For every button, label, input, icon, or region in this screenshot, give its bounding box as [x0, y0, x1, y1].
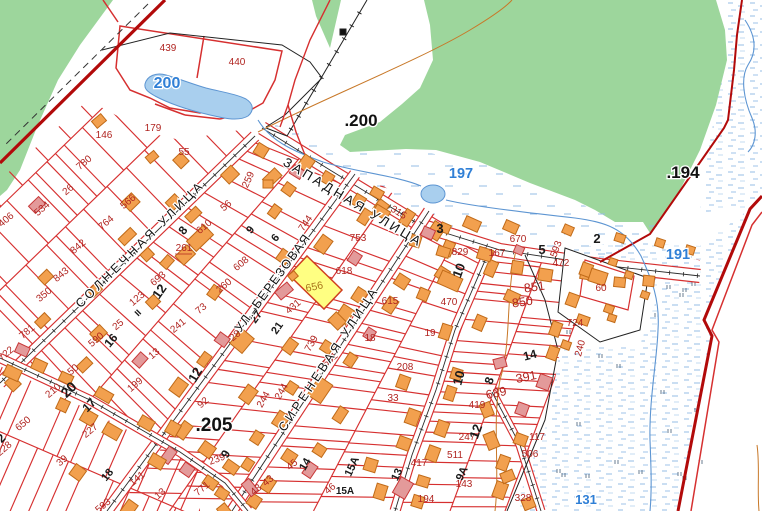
svg-text:208: 208: [397, 362, 414, 373]
svg-text:33: 33: [387, 393, 399, 404]
svg-text:472: 472: [553, 258, 570, 269]
svg-text:851: 851: [523, 279, 546, 296]
svg-text:261: 261: [176, 243, 193, 254]
svg-text:439: 439: [160, 43, 177, 54]
svg-text:167: 167: [489, 248, 506, 259]
svg-text:850: 850: [511, 294, 534, 311]
svg-text:419: 419: [469, 400, 486, 411]
svg-text:131: 131: [575, 492, 597, 507]
svg-text:194: 194: [418, 494, 435, 505]
svg-text:615: 615: [382, 296, 399, 307]
svg-text:117: 117: [529, 432, 545, 443]
svg-text:328: 328: [515, 493, 532, 504]
svg-text:670: 670: [510, 234, 527, 245]
svg-text:15А: 15А: [336, 486, 354, 497]
svg-text:724: 724: [567, 318, 584, 329]
svg-text:.205: .205: [196, 415, 233, 436]
svg-text:5: 5: [538, 242, 545, 257]
svg-text:.194: .194: [666, 163, 700, 182]
svg-text:753: 753: [350, 233, 367, 244]
svg-text:197: 197: [449, 166, 473, 182]
svg-text:179: 179: [145, 123, 162, 134]
svg-text:55: 55: [178, 147, 190, 158]
svg-text:417: 417: [411, 458, 428, 469]
svg-text:2: 2: [593, 231, 600, 246]
svg-text:18: 18: [364, 333, 376, 344]
svg-text:200: 200: [154, 75, 181, 92]
svg-text:19: 19: [424, 328, 436, 339]
svg-text:3: 3: [436, 221, 443, 236]
svg-text:191: 191: [666, 247, 690, 263]
svg-text:146: 146: [96, 130, 113, 141]
svg-text:506: 506: [522, 449, 539, 460]
svg-text:618: 618: [336, 266, 353, 277]
svg-text:829: 829: [452, 247, 469, 258]
svg-text:470: 470: [441, 297, 458, 308]
svg-text:.200: .200: [344, 111, 377, 130]
svg-text:60: 60: [595, 283, 607, 294]
svg-text:440: 440: [229, 57, 246, 68]
svg-text:511: 511: [447, 450, 463, 461]
